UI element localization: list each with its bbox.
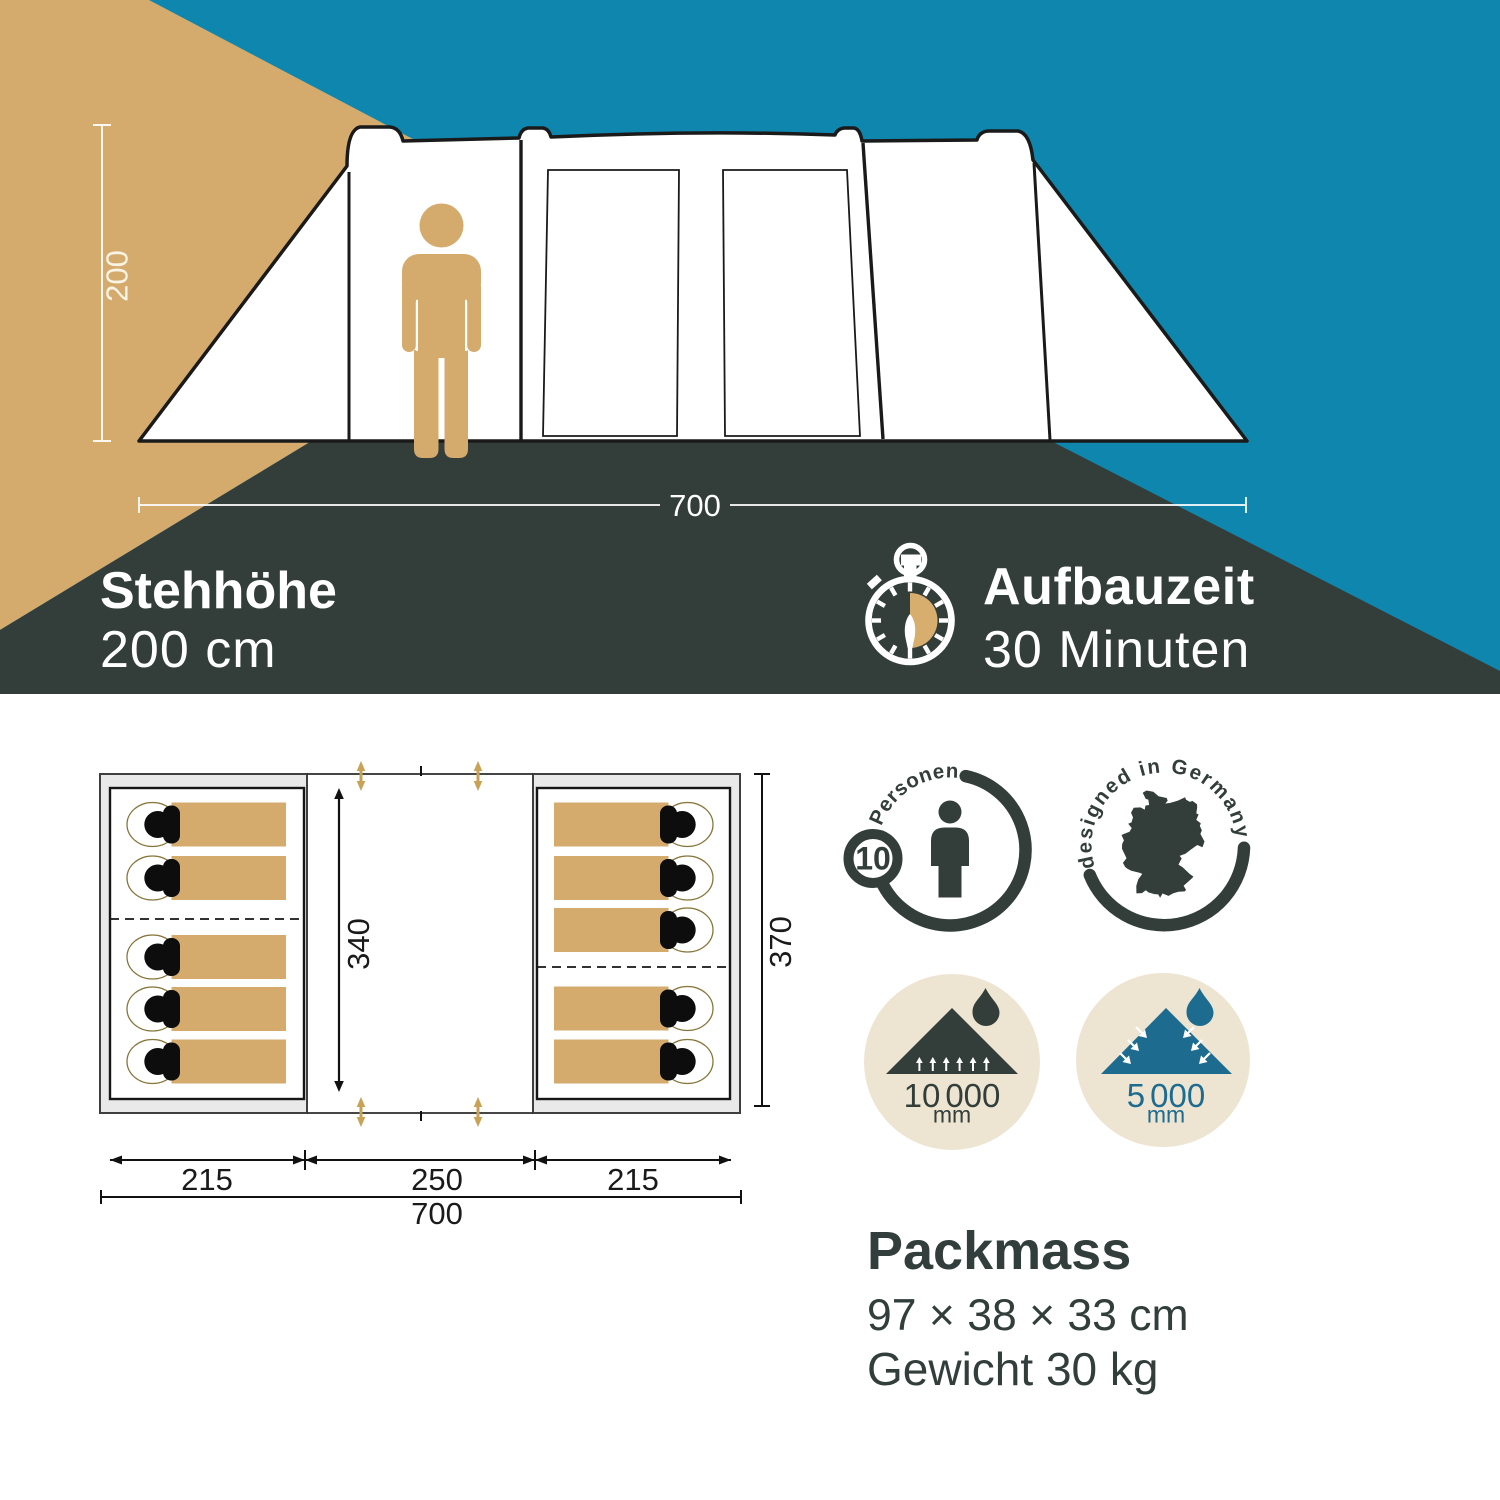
svg-text:250: 250	[411, 1162, 463, 1197]
svg-text:30 Minuten: 30 Minuten	[983, 621, 1250, 679]
svg-text:215: 215	[181, 1162, 233, 1197]
svg-text:700: 700	[411, 1196, 463, 1231]
svg-text:700: 700	[669, 488, 721, 523]
svg-text:200 cm: 200 cm	[100, 621, 277, 679]
svg-text:340: 340	[341, 918, 376, 970]
svg-text:Gewicht 30 kg: Gewicht 30 kg	[867, 1343, 1158, 1395]
svg-text:10: 10	[855, 841, 891, 877]
svg-text:mm: mm	[1147, 1102, 1185, 1128]
svg-text:370: 370	[763, 916, 798, 968]
svg-text:Packmass: Packmass	[867, 1221, 1131, 1281]
svg-text:215: 215	[607, 1162, 659, 1197]
svg-text:Aufbauzeit: Aufbauzeit	[983, 558, 1255, 616]
svg-text:97 × 38 × 33 cm: 97 × 38 × 33 cm	[867, 1291, 1189, 1340]
svg-text:mm: mm	[933, 1102, 971, 1128]
svg-text:200: 200	[100, 250, 135, 302]
svg-text:Stehhöhe: Stehhöhe	[100, 562, 337, 620]
